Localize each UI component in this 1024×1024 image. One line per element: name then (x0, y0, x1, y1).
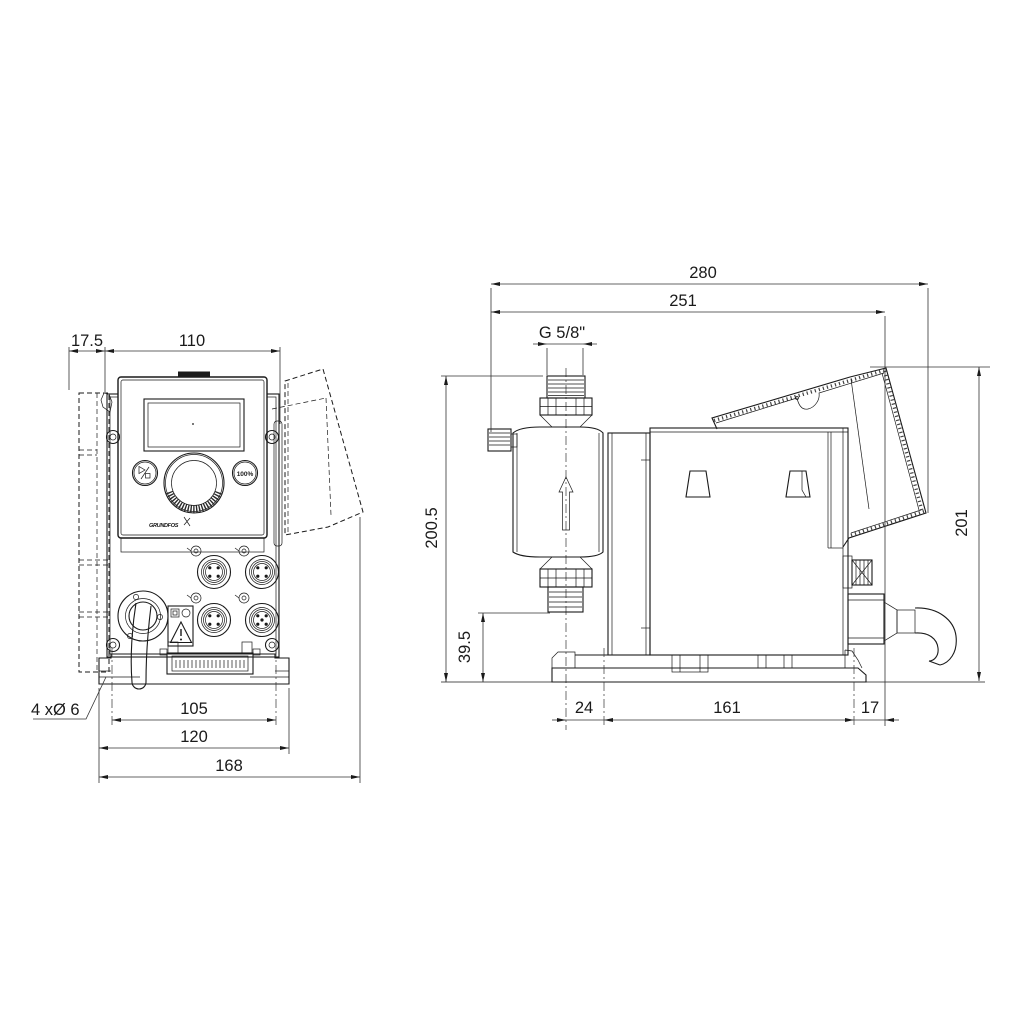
power-cable (131, 603, 136, 682)
technical-drawing-page: 100% GRUNDFOS (0, 0, 1024, 1024)
side-view: 280 251 G 5/8" 200.5 39.5 (423, 264, 990, 730)
dosing-head (488, 368, 603, 730)
dim-hole-pitch: 105 (180, 700, 208, 718)
dim-hole-pitch-side: 161 (713, 699, 741, 717)
connector-symbol-icon (235, 546, 249, 556)
connector-symbol-icon (187, 593, 201, 603)
valve-knob (488, 429, 511, 451)
dim-thread: G 5/8" (539, 324, 585, 342)
front-view: 100% GRUNDFOS (31, 332, 363, 783)
control-module-side (712, 368, 926, 547)
dim-plate-depth: 17.5 (71, 332, 103, 350)
m12-connectors (187, 546, 279, 637)
brand-text: GRUNDFOS (149, 523, 179, 529)
rail-serration (176, 660, 244, 668)
warning-label (168, 606, 193, 646)
pump-housing-side (608, 428, 848, 655)
clamp-lug (686, 471, 710, 497)
dim-edge-offset: 17 (861, 699, 879, 717)
connector-socket (246, 604, 279, 637)
dim-height-to-port: 200.5 (423, 507, 441, 548)
cable-gland-side (848, 594, 884, 644)
dim-length-to-module: 251 (669, 292, 697, 310)
module-face-groove (716, 373, 884, 423)
clamp-lug (786, 471, 810, 497)
connector-socket (246, 556, 279, 589)
rear-connections (843, 556, 956, 665)
plug-icon (171, 609, 179, 617)
percent-button-label: 100% (237, 471, 254, 478)
cable-gland-front (118, 591, 168, 689)
screw-icon (107, 639, 120, 652)
connector-socket (198, 556, 231, 589)
rotate-icon (182, 609, 190, 617)
screw-icon (266, 639, 279, 652)
mounting-rail (160, 642, 260, 674)
dim-plate-width: 120 (180, 728, 208, 746)
connector-symbol-icon (235, 593, 249, 603)
dim-overall-height: 201 (953, 509, 971, 537)
dim-body-width: 110 (179, 332, 205, 350)
control-panel: 100% GRUNDFOS (118, 377, 267, 552)
connector-symbol-icon (187, 546, 201, 556)
dim-mounting-holes: 4 xØ 6 (31, 701, 80, 719)
connector-socket (198, 604, 231, 637)
dim-overall-width: 168 (215, 757, 243, 775)
baseplate-side (552, 650, 866, 682)
top-tab (178, 372, 210, 378)
dim-overall-length: 280 (689, 264, 717, 282)
dim-valve-height: 39.5 (456, 631, 474, 663)
dim-head-offset: 24 (575, 699, 593, 717)
side-dimensions: 280 251 G 5/8" 200.5 39.5 (423, 264, 990, 726)
thread-bottom (549, 592, 582, 607)
baseplate-front (99, 654, 289, 684)
control-module-dashed (272, 369, 363, 546)
dosing-pump-dimensional-drawing: 100% GRUNDFOS (0, 0, 1024, 1024)
power-cable-side (915, 608, 956, 665)
